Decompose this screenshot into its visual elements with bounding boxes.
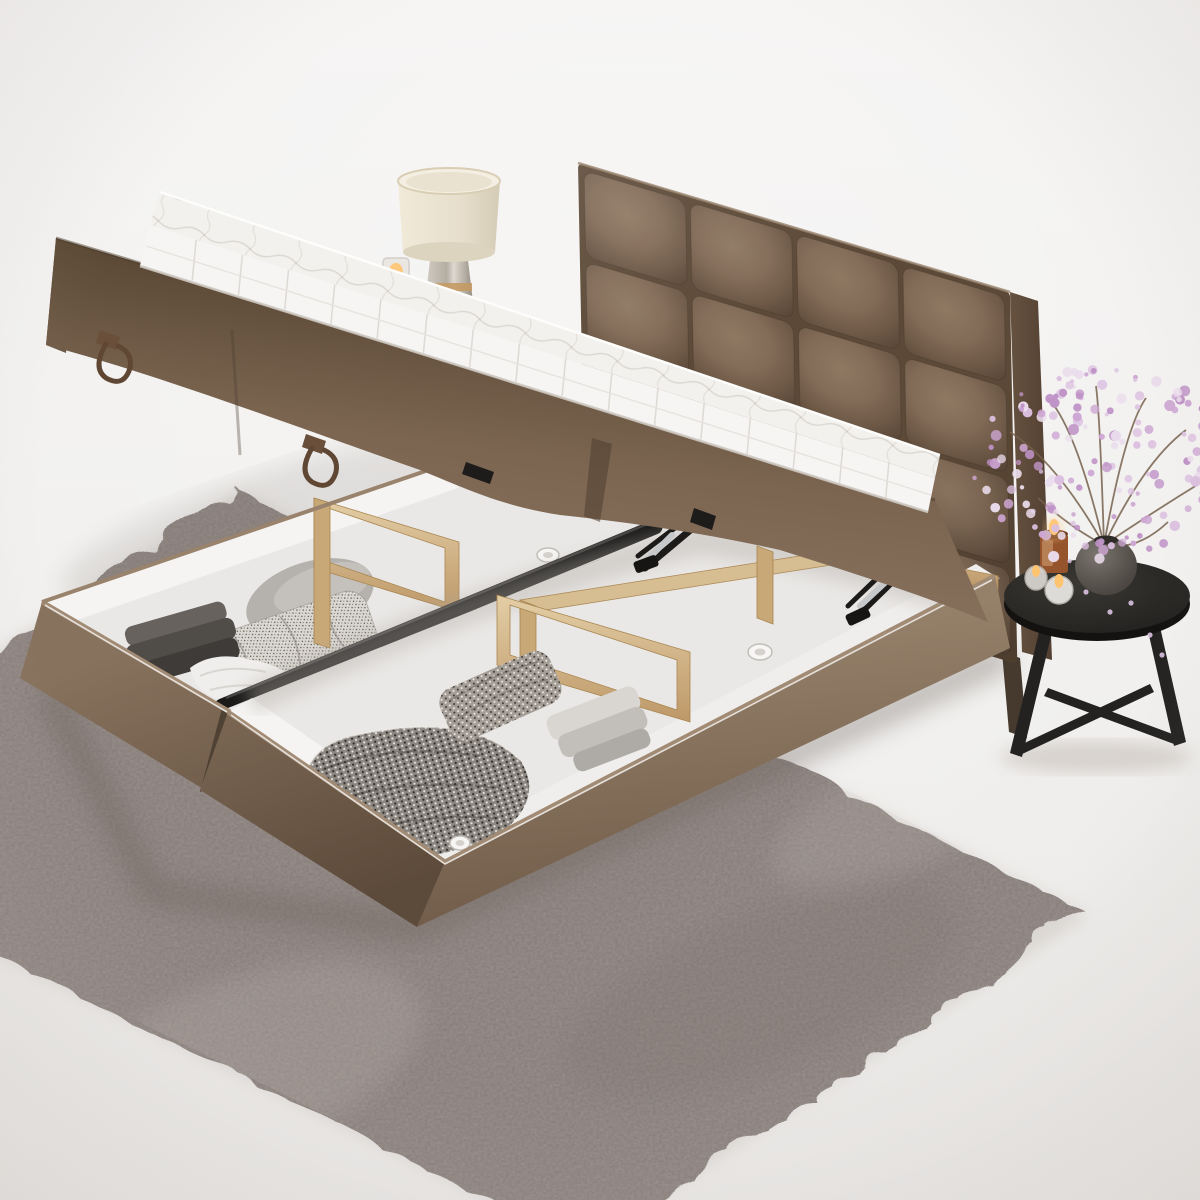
blossom bbox=[1083, 424, 1088, 429]
blossom bbox=[1160, 511, 1168, 519]
blossom bbox=[1071, 532, 1076, 537]
blossom bbox=[1159, 539, 1168, 548]
blossom bbox=[1095, 539, 1103, 547]
blossom bbox=[1070, 521, 1075, 526]
blossom bbox=[1049, 398, 1059, 408]
blossom bbox=[1073, 403, 1081, 411]
blossom bbox=[1094, 553, 1104, 563]
blossom bbox=[1148, 440, 1157, 449]
blossom bbox=[1125, 475, 1133, 483]
blossom bbox=[1114, 368, 1119, 373]
blossom bbox=[1058, 532, 1066, 540]
blossom bbox=[1068, 477, 1074, 483]
blossom bbox=[1058, 485, 1063, 490]
blossom bbox=[1062, 367, 1072, 377]
blossom bbox=[1075, 370, 1084, 379]
blossom bbox=[972, 476, 977, 481]
blossom bbox=[1082, 542, 1089, 549]
blossom bbox=[1038, 410, 1046, 418]
blossom bbox=[1016, 460, 1021, 465]
blossom bbox=[1099, 434, 1105, 440]
blossom bbox=[989, 416, 995, 422]
flame bbox=[1055, 574, 1064, 588]
petal bbox=[1083, 589, 1088, 594]
blossom bbox=[1004, 499, 1014, 509]
blossom bbox=[987, 459, 994, 466]
blossom bbox=[1076, 484, 1082, 490]
pine-post-left bbox=[314, 498, 330, 648]
blossom bbox=[1074, 525, 1080, 531]
petal bbox=[1147, 632, 1152, 637]
blossom bbox=[1119, 439, 1125, 445]
blossom bbox=[1049, 411, 1058, 420]
lamp-shade-bottom bbox=[403, 242, 495, 262]
blossom bbox=[1068, 424, 1079, 435]
blossom bbox=[1131, 502, 1136, 507]
blossom bbox=[1135, 391, 1144, 400]
blossom bbox=[1111, 431, 1122, 442]
blossom bbox=[1032, 524, 1038, 530]
blossom bbox=[1128, 488, 1135, 495]
blossom bbox=[1135, 404, 1141, 410]
flame bbox=[1032, 565, 1040, 577]
blossom bbox=[1067, 559, 1071, 563]
blossom bbox=[1137, 533, 1143, 539]
blossom bbox=[1071, 512, 1076, 517]
blossom bbox=[1170, 521, 1180, 531]
blossom bbox=[1116, 393, 1126, 403]
blossom bbox=[1007, 485, 1016, 494]
vent-grommet-center bbox=[755, 649, 766, 656]
blossom bbox=[1090, 405, 1099, 414]
blossom bbox=[1185, 400, 1192, 407]
blossom bbox=[1107, 407, 1114, 414]
blossom bbox=[998, 514, 1006, 522]
blossom bbox=[989, 445, 994, 450]
blossom bbox=[1188, 434, 1196, 442]
blossom bbox=[1133, 428, 1142, 437]
blossom bbox=[1133, 441, 1141, 449]
blossom bbox=[1019, 407, 1024, 412]
blossom bbox=[1185, 505, 1192, 512]
blossom bbox=[1118, 539, 1126, 547]
blossom bbox=[1091, 368, 1097, 374]
blossom bbox=[1073, 412, 1082, 421]
blossom bbox=[1135, 419, 1141, 425]
blossom bbox=[1164, 400, 1175, 411]
blossom bbox=[1091, 458, 1097, 464]
blossom bbox=[1145, 425, 1154, 434]
blossom bbox=[1133, 378, 1137, 382]
blossom bbox=[1108, 542, 1115, 549]
blossom bbox=[1065, 435, 1072, 442]
blossom bbox=[1111, 514, 1116, 519]
blossom bbox=[1176, 397, 1181, 402]
vent-grommet-center bbox=[543, 552, 553, 558]
blossom bbox=[1143, 515, 1152, 524]
blossom bbox=[1125, 535, 1129, 539]
blossom bbox=[1187, 456, 1193, 462]
blossom bbox=[1019, 392, 1023, 396]
blossom bbox=[990, 503, 1000, 513]
blossom bbox=[1136, 491, 1140, 495]
blossom bbox=[1146, 545, 1152, 551]
blossom bbox=[1012, 469, 1022, 479]
pine-post bbox=[757, 546, 773, 624]
blossom bbox=[1034, 462, 1043, 471]
blossom bbox=[1076, 389, 1085, 398]
blossom bbox=[1054, 475, 1064, 485]
blossom bbox=[1019, 444, 1027, 452]
blossom bbox=[1070, 379, 1074, 383]
blossom bbox=[991, 430, 1002, 441]
blossom bbox=[1026, 509, 1035, 518]
petal bbox=[1159, 652, 1164, 657]
blossom bbox=[1097, 380, 1107, 390]
blossom bbox=[1173, 388, 1182, 397]
blossom bbox=[1022, 501, 1030, 509]
blossom bbox=[1088, 470, 1095, 477]
blossom bbox=[1039, 531, 1046, 538]
blossom bbox=[1056, 376, 1061, 381]
blossom bbox=[1020, 485, 1024, 489]
blossom bbox=[1059, 389, 1067, 397]
blossom bbox=[1052, 431, 1060, 439]
blossom bbox=[1151, 376, 1162, 387]
blossom bbox=[1084, 372, 1088, 376]
blossom bbox=[997, 454, 1006, 463]
blossom bbox=[1102, 462, 1112, 472]
blossom bbox=[1051, 524, 1059, 532]
blossom bbox=[982, 486, 991, 495]
blossom bbox=[1150, 470, 1159, 479]
blossom bbox=[1116, 487, 1122, 493]
blossom bbox=[1025, 450, 1034, 459]
render-stage: Ottoman storage bed with lifted mattress… bbox=[0, 0, 1200, 1200]
blossom bbox=[1182, 432, 1187, 437]
blossom bbox=[1130, 540, 1136, 546]
blossom bbox=[1111, 442, 1118, 449]
scene: Ottoman storage bed with lifted mattress… bbox=[0, 0, 1200, 1200]
blossom bbox=[1048, 551, 1059, 562]
petal bbox=[1128, 600, 1133, 605]
blossom bbox=[1154, 479, 1164, 489]
blossom bbox=[1053, 509, 1058, 514]
vent-grommet-center bbox=[456, 840, 465, 846]
lamp-shade-inner bbox=[406, 172, 492, 192]
blossom bbox=[1045, 479, 1053, 487]
petal bbox=[1107, 609, 1112, 614]
